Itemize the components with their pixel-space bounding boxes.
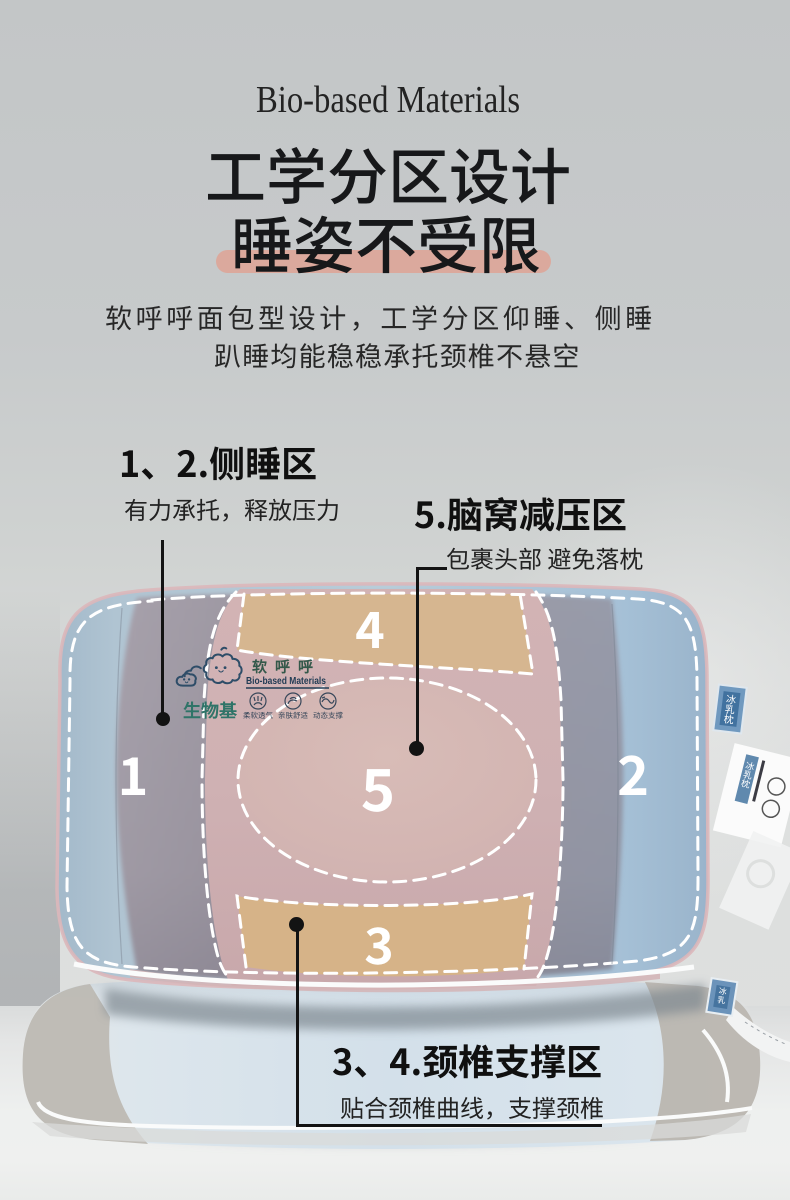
svg-text:3: 3 [364, 907, 394, 979]
svg-text:柔软透气: 柔软透气 [243, 710, 273, 721]
svg-text:1: 1 [118, 735, 149, 810]
svg-text:4: 4 [355, 591, 385, 663]
svg-text:亲肤舒适: 亲肤舒适 [278, 710, 308, 721]
svg-text:软呼呼: 软呼呼 [252, 656, 321, 677]
svg-text:枕: 枕 [723, 710, 735, 726]
svg-text:5: 5 [361, 744, 395, 828]
svg-text:Bio-based Materials: Bio-based Materials [246, 676, 326, 687]
svg-text:生物基: 生物基 [183, 697, 238, 723]
svg-text:动态支撑: 动态支撑 [313, 710, 343, 721]
svg-text:2: 2 [617, 732, 649, 811]
